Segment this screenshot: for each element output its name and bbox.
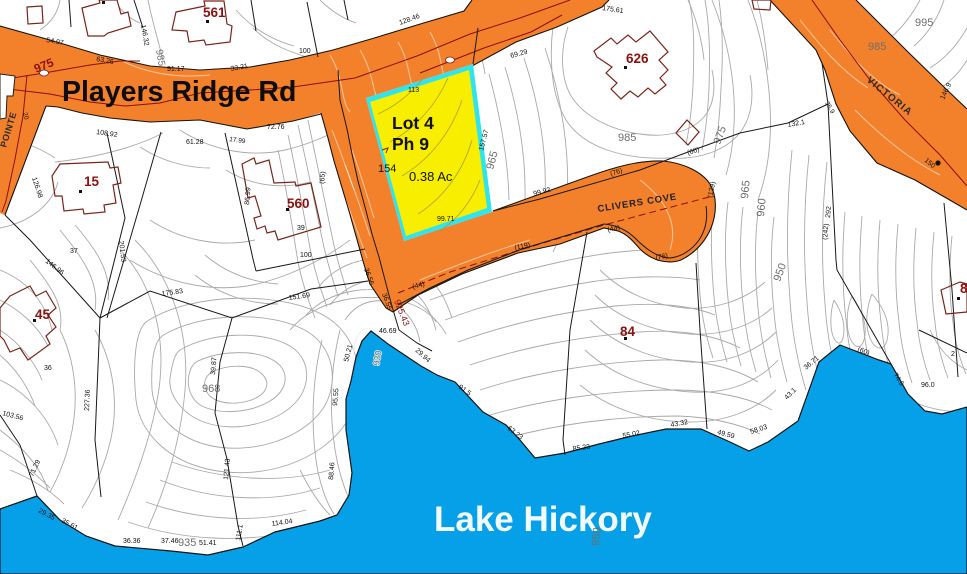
- svg-text:36.36: 36.36: [123, 538, 141, 545]
- svg-text:91.17: 91.17: [167, 66, 185, 73]
- svg-text:560: 560: [287, 196, 310, 211]
- svg-text:985: 985: [618, 132, 636, 144]
- svg-text:99.71: 99.71: [437, 216, 455, 223]
- svg-text:51.41: 51.41: [199, 540, 217, 547]
- svg-text:2: 2: [951, 351, 955, 358]
- svg-text:154: 154: [378, 163, 396, 175]
- svg-text:Lot 4: Lot 4: [392, 113, 434, 133]
- svg-text:626: 626: [626, 51, 649, 66]
- svg-text:15: 15: [84, 174, 100, 189]
- svg-text:46.69: 46.69: [379, 328, 397, 335]
- svg-text:935: 935: [178, 537, 196, 549]
- svg-text:113: 113: [408, 87, 419, 94]
- svg-text:227.36: 227.36: [84, 389, 92, 411]
- svg-text:968: 968: [202, 383, 220, 395]
- svg-text:950: 950: [590, 527, 604, 546]
- svg-text:61.28: 61.28: [186, 139, 204, 146]
- svg-text:84: 84: [620, 324, 636, 339]
- svg-text:292: 292: [825, 206, 833, 218]
- svg-text:96.0: 96.0: [921, 382, 935, 389]
- svg-text:(65): (65): [319, 171, 327, 184]
- svg-text:8: 8: [960, 281, 967, 296]
- svg-text:45: 45: [35, 307, 51, 322]
- svg-text:561: 561: [203, 5, 226, 20]
- svg-text:960: 960: [755, 198, 769, 217]
- svg-text:985: 985: [868, 41, 886, 53]
- svg-text:100: 100: [300, 252, 312, 259]
- svg-text:995: 995: [915, 17, 933, 29]
- svg-text:72.76: 72.76: [267, 124, 285, 131]
- svg-text:39: 39: [297, 225, 305, 232]
- svg-text:0.38 Ac: 0.38 Ac: [409, 169, 453, 184]
- svg-text:Lake Hickory: Lake Hickory: [434, 500, 652, 539]
- svg-text:100: 100: [299, 48, 311, 55]
- svg-text:37.46: 37.46: [161, 538, 179, 545]
- svg-text:965: 965: [739, 180, 753, 199]
- svg-text:Ph 9: Ph 9: [392, 134, 429, 154]
- svg-text:37: 37: [70, 248, 78, 255]
- svg-text:Players Ridge Rd: Players Ridge Rd: [62, 76, 296, 108]
- svg-text:(242): (242): [822, 223, 830, 240]
- svg-text:36: 36: [44, 365, 52, 372]
